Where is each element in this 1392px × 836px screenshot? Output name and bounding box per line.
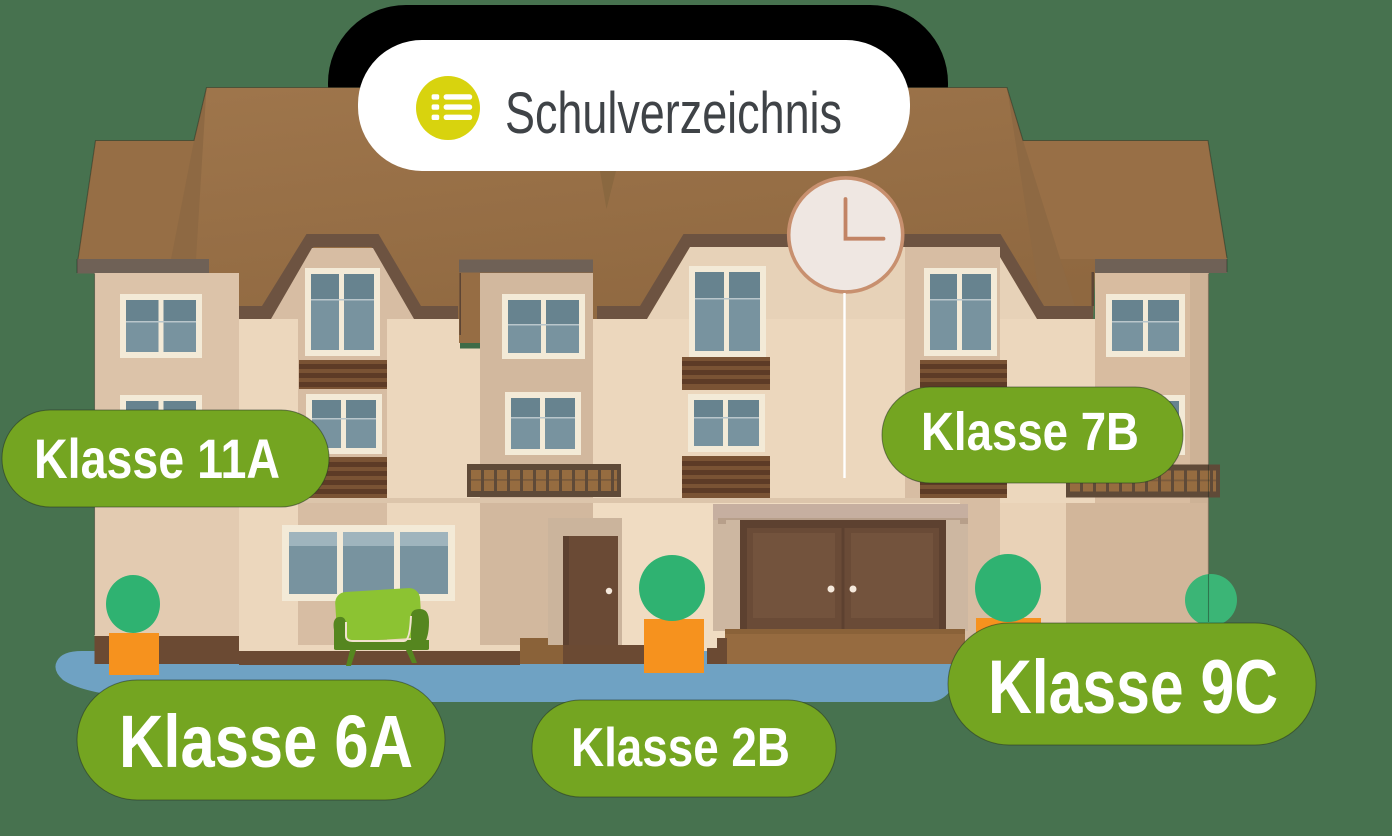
svg-text:Klasse 11A: Klasse 11A — [34, 427, 280, 490]
svg-text:Klasse 7B: Klasse 7B — [921, 402, 1139, 462]
svg-text:Klasse 9C: Klasse 9C — [988, 645, 1278, 730]
svg-text:Klasse 6A: Klasse 6A — [119, 700, 413, 783]
svg-text:Klasse 2B: Klasse 2B — [571, 716, 790, 778]
svg-text:Schulverzeichnis: Schulverzeichnis — [505, 81, 842, 146]
